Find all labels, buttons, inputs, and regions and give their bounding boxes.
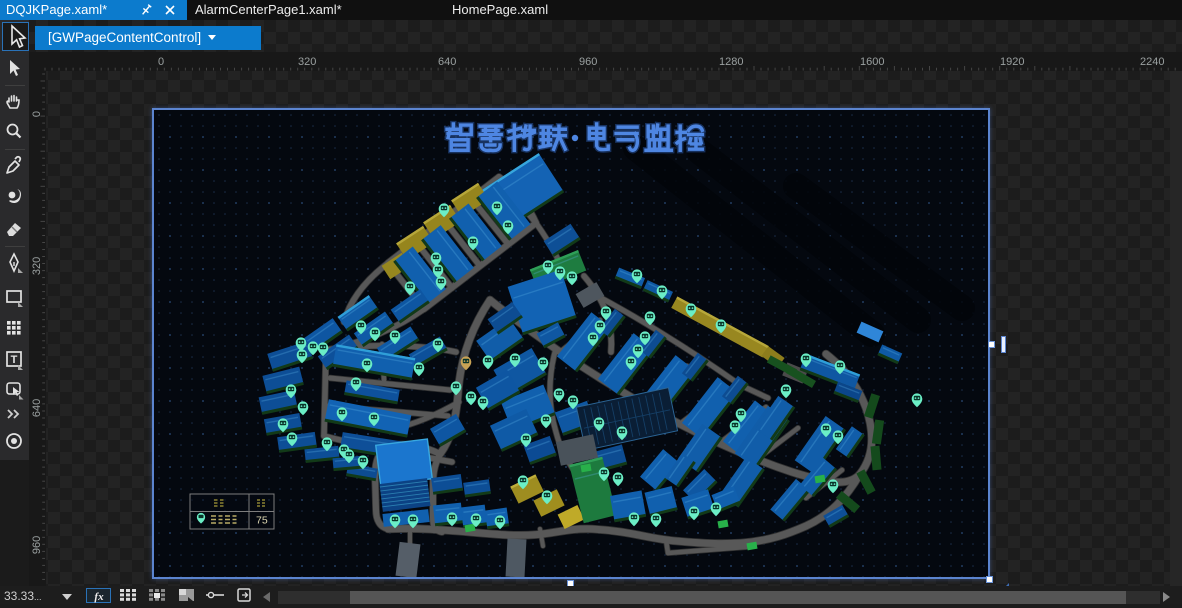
svg-text:640: 640: [31, 399, 43, 417]
svg-text:75: 75: [256, 515, 268, 527]
svg-text:960: 960: [31, 536, 43, 554]
svg-text:320: 320: [31, 257, 43, 275]
svg-text:1920: 1920: [1000, 56, 1024, 68]
svg-text:1280: 1280: [719, 56, 743, 68]
svg-text:fx: fx: [94, 591, 104, 603]
svg-text:960: 960: [579, 56, 597, 68]
svg-text:320: 320: [298, 56, 316, 68]
svg-text:2240: 2240: [1140, 56, 1164, 68]
svg-text:1600: 1600: [860, 56, 884, 68]
svg-text:640: 640: [438, 56, 456, 68]
svg-text:0: 0: [158, 56, 164, 68]
